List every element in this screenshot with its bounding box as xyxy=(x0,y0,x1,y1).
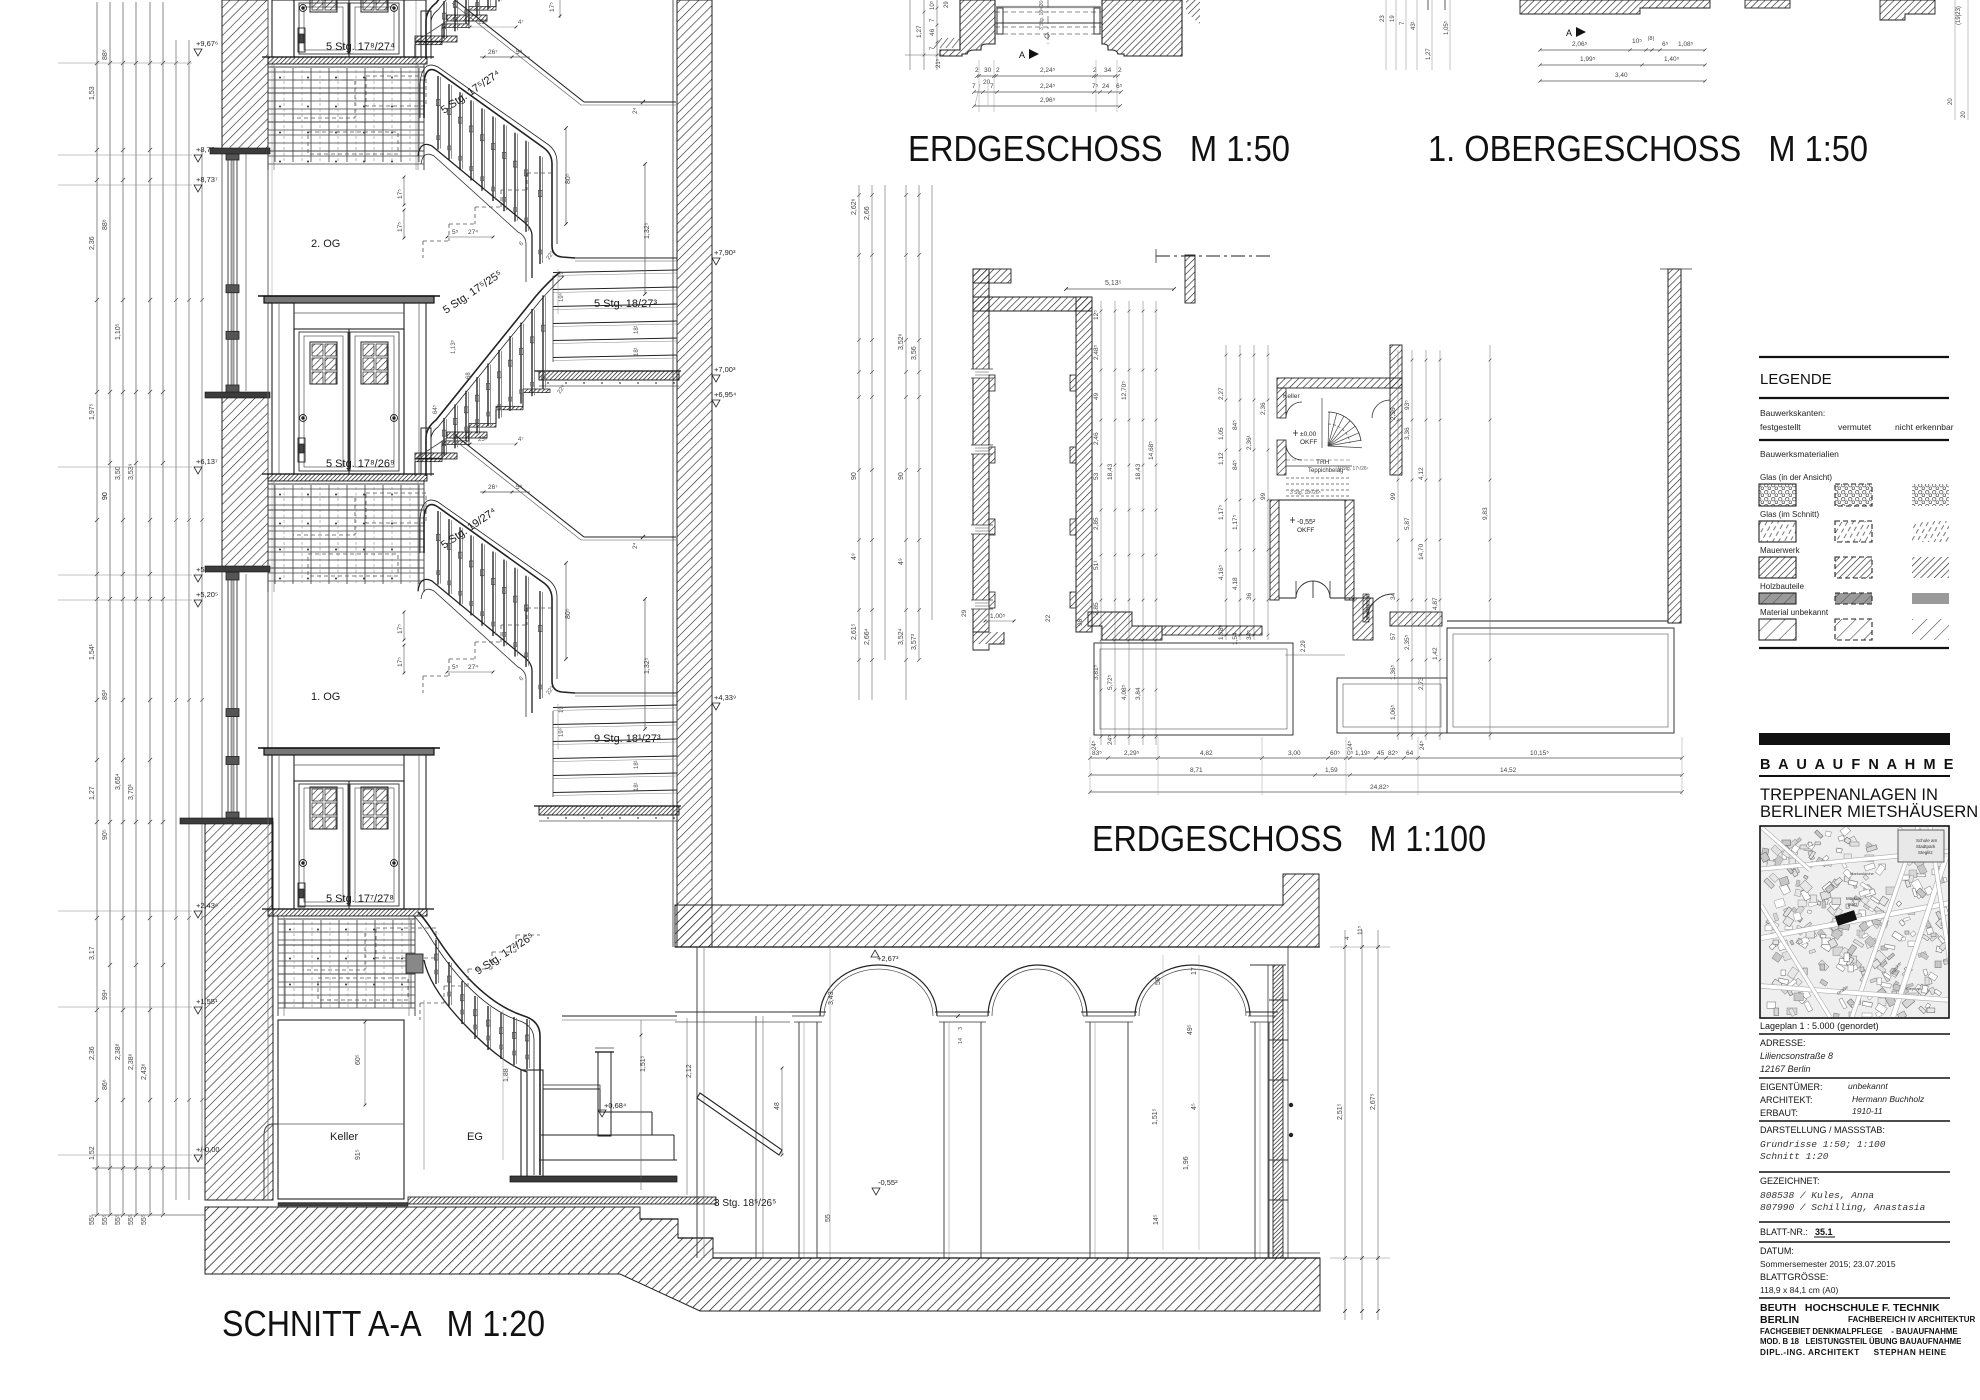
svg-text:4⁷: 4⁷ xyxy=(518,436,524,443)
svg-text:2,29⁵: 2,29⁵ xyxy=(1124,750,1140,757)
svg-text:+4,33⁹: +4,33⁹ xyxy=(714,693,736,702)
svg-text:4,12: 4,12 xyxy=(1418,467,1425,480)
svg-text:18,43: 18,43 xyxy=(1107,463,1114,480)
svg-text:5⁸: 5⁸ xyxy=(516,484,523,491)
svg-text:-0,55²: -0,55² xyxy=(1297,519,1316,526)
svg-text:1,12: 1,12 xyxy=(1218,452,1225,465)
svg-text:Grundrisse 1:50; 1:100: Grundrisse 1:50; 1:100 xyxy=(1760,1139,1886,1150)
svg-text:0⁵: 0⁵ xyxy=(1347,750,1354,757)
svg-text:DIPL.-ING. ARCHITEKT STEPH: DIPL.-ING. ARCHITEKT STEPHAN HEINE xyxy=(1760,1348,1947,1357)
svg-text:2,29: 2,29 xyxy=(1301,640,1307,652)
svg-text:+7,00³: +7,00³ xyxy=(714,365,736,374)
svg-text:BERLINER MIETSHÄUSERN: BERLINER MIETSHÄUSERN xyxy=(1760,803,1978,821)
svg-text:GEZEICHNET:: GEZEICHNET: xyxy=(1760,1176,1820,1186)
svg-text:2: 2 xyxy=(996,67,1000,74)
svg-text:86⁶: 86⁶ xyxy=(102,1079,109,1090)
svg-text:Bauwerksmaterialien: Bauwerksmaterialien xyxy=(1760,449,1839,459)
svg-text:2,38⁶: 2,38⁶ xyxy=(128,1053,135,1070)
svg-text:55⁵: 55⁵ xyxy=(141,1214,148,1225)
svg-text:36: 36 xyxy=(1246,592,1253,600)
svg-text:2,51⁵: 2,51⁵ xyxy=(1337,1103,1344,1120)
svg-text:12,70⁵: 12,70⁵ xyxy=(1121,381,1128,400)
svg-text:6⁵: 6⁵ xyxy=(1116,83,1123,90)
svg-text:90: 90 xyxy=(102,492,109,500)
svg-text:2⁴: 2⁴ xyxy=(632,542,639,549)
svg-text:21⁵: 21⁵ xyxy=(935,58,942,68)
svg-text:24⁵: 24⁵ xyxy=(1347,740,1354,750)
svg-text:1,99⁵: 1,99⁵ xyxy=(1580,56,1596,63)
svg-text:unbekannt: unbekannt xyxy=(1848,1081,1888,1091)
svg-text:9 Stg. 17¹/26⁷: 9 Stg. 17¹/26⁷ xyxy=(1338,466,1369,472)
svg-text:2,38⁸: 2,38⁸ xyxy=(115,1043,122,1060)
svg-text:19⁶: 19⁶ xyxy=(558,292,565,302)
svg-text:10⁵: 10⁵ xyxy=(1632,38,1642,45)
svg-text:ADRESSE:: ADRESSE: xyxy=(1760,1038,1806,1048)
svg-text:Liliencsonstraße 8: Liliencsonstraße 8 xyxy=(1760,1051,1833,1061)
svg-text:26⁷: 26⁷ xyxy=(488,484,498,491)
svg-text:vermutet: vermutet xyxy=(1838,422,1872,432)
svg-text:4,18: 4,18 xyxy=(1232,577,1239,590)
svg-text:Keller: Keller xyxy=(330,1131,358,1143)
svg-text:2,35⁵: 2,35⁵ xyxy=(1404,634,1411,650)
svg-text:Sommersemester 2015; 23.07.201: Sommersemester 2015; 23.07.2015 xyxy=(1760,1259,1896,1269)
svg-text:1,06⁵: 1,06⁵ xyxy=(1390,704,1397,720)
svg-text:Hermann Buchholz: Hermann Buchholz xyxy=(1852,1094,1925,1104)
svg-text:2: 2 xyxy=(1118,67,1122,74)
svg-text:3,52⁶: 3,52⁶ xyxy=(898,333,905,350)
svg-text:18¹: 18¹ xyxy=(634,347,640,356)
svg-text:3 Stg. 18¹/26⁵: 3 Stg. 18¹/26⁵ xyxy=(1290,490,1321,496)
svg-text:10,15⁵: 10,15⁵ xyxy=(1530,750,1549,757)
svg-text:1,53: 1,53 xyxy=(89,86,96,100)
svg-text:53: 53 xyxy=(1093,472,1100,480)
svg-text:1,10⁵: 1,10⁵ xyxy=(115,323,122,340)
svg-text:3,84: 3,84 xyxy=(1135,687,1142,700)
svg-text:1,51⁵: 1,51⁵ xyxy=(640,1055,647,1072)
svg-text:45: 45 xyxy=(1377,750,1385,757)
svg-text:1,17⁵: 1,17⁵ xyxy=(1232,514,1239,530)
svg-text:ARCHITEKT:: ARCHITEKT: xyxy=(1760,1095,1813,1105)
svg-text:34: 34 xyxy=(1104,67,1112,74)
svg-text:7⁵: 7⁵ xyxy=(1092,83,1099,90)
svg-text:2,96⁵: 2,96⁵ xyxy=(1040,97,1056,104)
svg-text:3 Stg. 18⁵/26⁵: 3 Stg. 18⁵/26⁵ xyxy=(714,1198,776,1209)
svg-text:90: 90 xyxy=(898,472,905,480)
svg-text:2: 2 xyxy=(975,67,979,74)
svg-text:99⁴: 99⁴ xyxy=(102,989,109,1000)
svg-text:+2,67³: +2,67³ xyxy=(877,954,899,963)
svg-text:55⁵: 55⁵ xyxy=(115,1214,122,1225)
svg-text:27⁴: 27⁴ xyxy=(468,229,478,236)
svg-text:18,43: 18,43 xyxy=(1135,463,1142,480)
svg-text:20: 20 xyxy=(1961,111,1967,118)
svg-text:4⁷: 4⁷ xyxy=(518,19,524,26)
svg-text:14⁵: 14⁵ xyxy=(1153,1214,1160,1225)
svg-text:3,65⁴: 3,65⁴ xyxy=(115,773,122,790)
svg-text:3,53⁹: 3,53⁹ xyxy=(128,463,135,480)
svg-text:807990 / Schilling, Anastasia: 807990 / Schilling, Anastasia xyxy=(1760,1202,1925,1213)
svg-text:20: 20 xyxy=(1948,98,1954,105)
svg-text:Schnitt 1:20: Schnitt 1:20 xyxy=(1760,1151,1829,1162)
svg-text:4,08⁵: 4,08⁵ xyxy=(1121,684,1128,700)
svg-text:1,05⁵: 1,05⁵ xyxy=(1443,20,1450,35)
svg-text:5⁵: 5⁵ xyxy=(452,229,459,236)
svg-text:99: 99 xyxy=(1260,492,1267,500)
svg-text:84⁵: 84⁵ xyxy=(1232,420,1239,430)
svg-text:3,70¹: 3,70¹ xyxy=(128,783,135,800)
svg-text:55⁵: 55⁵ xyxy=(102,1214,109,1225)
svg-text:14,70: 14,70 xyxy=(1418,543,1425,560)
svg-text:Schule am: Schule am xyxy=(1916,838,1938,843)
svg-text:808538 / Kules, Anna: 808538 / Kules, Anna xyxy=(1760,1190,1874,1201)
svg-text:+5,20⁵: +5,20⁵ xyxy=(196,590,218,599)
svg-text:2,06⁵: 2,06⁵ xyxy=(1572,41,1588,48)
svg-text:5,13⁵: 5,13⁵ xyxy=(1105,280,1122,287)
svg-text:Markus-: Markus- xyxy=(1846,896,1863,901)
svg-text:1,59: 1,59 xyxy=(1325,767,1338,774)
svg-text:2,36: 2,36 xyxy=(1390,407,1397,420)
svg-text:8,71: 8,71 xyxy=(1190,767,1203,774)
svg-text:TRH: TRH xyxy=(1316,459,1330,466)
svg-text:SCHNITT A-A M 1:20: SCHNITT A-A M 1:20 xyxy=(222,1303,545,1344)
svg-text:FACHGEBIET DENKMALPFLEGE -: FACHGEBIET DENKMALPFLEGE - BAUAUFNAHME xyxy=(1760,1327,1958,1336)
svg-text:93⁵: 93⁵ xyxy=(1404,400,1411,410)
svg-text:2,46: 2,46 xyxy=(1093,432,1100,445)
svg-text:1,00⁵: 1,00⁵ xyxy=(990,613,1006,620)
svg-text:2,62⁶: 2,62⁶ xyxy=(851,198,858,215)
svg-text:2,67⁵: 2,67⁵ xyxy=(1370,1093,1377,1110)
svg-text:17⁵: 17⁵ xyxy=(397,189,404,199)
svg-text:83⁵: 83⁵ xyxy=(1092,750,1102,757)
svg-text:3,50: 3,50 xyxy=(115,466,122,480)
svg-text:98: 98 xyxy=(1077,618,1084,626)
svg-text:24⁵: 24⁵ xyxy=(1107,735,1114,745)
svg-text:Bauwerkskanten:: Bauwerkskanten: xyxy=(1760,408,1825,418)
svg-text:3,52⁴: 3,52⁴ xyxy=(898,628,905,645)
svg-text:5 Stg. 18/27³: 5 Stg. 18/27³ xyxy=(594,298,657,310)
svg-text:A: A xyxy=(1566,28,1572,38)
svg-text:+6,13⁷: +6,13⁷ xyxy=(196,457,218,466)
svg-text:30: 30 xyxy=(984,67,992,74)
svg-text:+6,95⁴: +6,95⁴ xyxy=(714,390,736,399)
svg-text:B A U A U F N A H M E: B A U A U F N A H M E xyxy=(1760,757,1956,773)
svg-text:3,36: 3,36 xyxy=(1404,427,1411,440)
svg-text:89³: 89³ xyxy=(102,689,109,700)
svg-text:EIGENTÜMER:: EIGENTÜMER: xyxy=(1760,1082,1823,1092)
svg-text:Steglitz: Steglitz xyxy=(1918,850,1934,855)
svg-text:1. OBERGESCHOSS M 1:50: 1. OBERGESCHOSS M 1:50 xyxy=(1428,128,1868,169)
svg-text:2,36: 2,36 xyxy=(1260,402,1267,415)
svg-text:3,40: 3,40 xyxy=(1615,72,1628,79)
svg-text:22: 22 xyxy=(1045,614,1052,622)
svg-text:7: 7 xyxy=(972,83,976,90)
svg-text:-0,55²: -0,55² xyxy=(878,1178,898,1187)
svg-text:ERDGESCHOSS M 1:50: ERDGESCHOSS M 1:50 xyxy=(908,128,1290,169)
svg-text:19: 19 xyxy=(559,706,565,713)
svg-text:24⁵: 24⁵ xyxy=(1091,740,1098,750)
svg-text:1,27: 1,27 xyxy=(916,25,923,38)
svg-text:±0.00: ±0.00 xyxy=(1300,431,1317,438)
svg-text:3: 3 xyxy=(958,1027,964,1030)
svg-text:7: 7 xyxy=(990,83,994,90)
svg-text:14: 14 xyxy=(958,1038,964,1044)
svg-text:55⁵: 55⁵ xyxy=(89,1214,96,1225)
svg-text:2,48⁵: 2,48⁵ xyxy=(1093,344,1100,360)
svg-text:Holzbauteile: Holzbauteile xyxy=(1760,582,1805,591)
svg-text:11⁵: 11⁵ xyxy=(1357,925,1364,935)
svg-text:5 Stg. 17⁷/27⁸: 5 Stg. 17⁷/27⁸ xyxy=(326,893,394,905)
svg-text:10⁵: 10⁵ xyxy=(929,0,936,10)
svg-text:Lageplan 1 : 5.000 (genordet): Lageplan 1 : 5.000 (genordet) xyxy=(1760,1021,1879,1031)
svg-text:14,52: 14,52 xyxy=(1500,767,1517,774)
svg-text:+8,73⁷: +8,73⁷ xyxy=(196,175,218,184)
svg-text:2⁴: 2⁴ xyxy=(632,107,639,114)
svg-text:2,66⁴: 2,66⁴ xyxy=(864,628,871,645)
svg-text:Glas (in der Ansicht): Glas (in der Ansicht) xyxy=(1760,473,1832,482)
svg-text:58: 58 xyxy=(1155,977,1162,985)
svg-text:18¹: 18¹ xyxy=(634,760,640,769)
svg-text:5⁵: 5⁵ xyxy=(452,664,459,671)
svg-text:OKFF: OKFF xyxy=(1300,439,1317,446)
svg-text:2,61⁵: 2,61⁵ xyxy=(851,623,858,640)
svg-text:12167 Berlin: 12167 Berlin xyxy=(1760,1064,1811,1074)
svg-text:60⁵: 60⁵ xyxy=(1330,750,1340,757)
svg-text:Mauerwerk: Mauerwerk xyxy=(1760,546,1801,555)
svg-text:2,24⁵: 2,24⁵ xyxy=(1040,67,1056,74)
svg-text:4⁹: 4⁹ xyxy=(898,558,905,565)
svg-text:ERBAUT:: ERBAUT: xyxy=(1760,1108,1798,1118)
svg-text:1,54¹: 1,54¹ xyxy=(89,643,96,660)
svg-text:35.1: 35.1 xyxy=(1815,1227,1833,1237)
svg-text:18¹: 18¹ xyxy=(634,325,640,334)
svg-text:2,36: 2,36 xyxy=(89,1046,96,1060)
svg-text:+7,90³: +7,90³ xyxy=(714,248,736,257)
svg-text:49: 49 xyxy=(1093,392,1100,400)
svg-text:2,36¹: 2,36¹ xyxy=(1246,434,1253,450)
svg-text:29: 29 xyxy=(961,609,968,617)
svg-text:Stadtpark: Stadtpark xyxy=(1916,844,1936,849)
svg-text:26⁷: 26⁷ xyxy=(488,49,498,56)
svg-text:Markuskirche: Markuskirche xyxy=(1850,871,1875,876)
svg-text:DARSTELLUNG / MASSSTAB:: DARSTELLUNG / MASSSTAB: xyxy=(1760,1125,1885,1135)
svg-text:2,24⁵: 2,24⁵ xyxy=(1040,83,1056,90)
svg-text:1910-11: 1910-11 xyxy=(1852,1106,1883,1116)
svg-text:1,32⁵: 1,32⁵ xyxy=(644,657,651,674)
svg-text:17⁵: 17⁵ xyxy=(397,624,404,634)
svg-text:Glas (im Schnitt): Glas (im Schnitt) xyxy=(1760,510,1819,519)
svg-text:48: 48 xyxy=(774,1102,781,1110)
svg-text:34: 34 xyxy=(1390,592,1397,600)
svg-text:9,83: 9,83 xyxy=(1482,507,1489,520)
svg-text:14,68⁵: 14,68⁵ xyxy=(1148,441,1155,460)
svg-text:3,17: 3,17 xyxy=(89,946,96,960)
svg-text:51¹: 51¹ xyxy=(1093,560,1100,570)
svg-text:Material unbekannt: Material unbekannt xyxy=(1760,608,1829,617)
svg-text:17⁵: 17⁵ xyxy=(549,2,556,12)
svg-text:4,16⁵: 4,16⁵ xyxy=(1218,564,1225,580)
svg-text:17⁵: 17⁵ xyxy=(397,657,404,667)
svg-text:19: 19 xyxy=(559,271,565,278)
svg-text:EG: EG xyxy=(467,1131,483,1143)
svg-text:24: 24 xyxy=(1102,83,1110,90)
svg-text:4: 4 xyxy=(1344,936,1351,940)
svg-text:49⁵: 49⁵ xyxy=(1187,1024,1194,1035)
svg-text:82⁵: 82⁵ xyxy=(1388,750,1398,757)
svg-text:1,51⁵: 1,51⁵ xyxy=(1152,1108,1159,1125)
svg-text:5 Stg. 17⁸/26⁹: 5 Stg. 17⁸/26⁹ xyxy=(326,458,395,470)
svg-text:1,05: 1,05 xyxy=(1218,427,1225,440)
svg-text:2,36: 2,36 xyxy=(89,236,96,250)
svg-text:46: 46 xyxy=(929,28,936,36)
svg-text:3,43: 3,43 xyxy=(828,991,835,1005)
svg-text:2,43⁶: 2,43⁶ xyxy=(141,1063,148,1080)
svg-text:17⁵: 17⁵ xyxy=(397,222,404,232)
svg-text:5,72⁵: 5,72⁵ xyxy=(1107,674,1114,690)
svg-text:1,97⁵: 1,97⁵ xyxy=(89,403,96,420)
svg-text:BEUTH HOCHSCHULE F. TECHNIK: BEUTH HOCHSCHULE F. TECHNIK xyxy=(1760,1302,1940,1314)
svg-text:19: 19 xyxy=(1390,15,1396,22)
svg-text:90: 90 xyxy=(851,472,858,480)
svg-text:TREPPENANLAGEN IN: TREPPENANLAGEN IN xyxy=(1760,786,1938,804)
svg-text:2,85: 2,85 xyxy=(1093,517,1100,530)
svg-text:68: 68 xyxy=(466,372,472,379)
svg-text:19⁶: 19⁶ xyxy=(558,727,565,737)
svg-text:88⁸: 88⁸ xyxy=(102,219,109,230)
svg-text:1,96: 1,96 xyxy=(1183,1156,1190,1170)
svg-text:55⁵: 55⁵ xyxy=(128,1214,135,1225)
svg-text:MOD. B 18 LEISTUNGSTEIL ÜBUN: MOD. B 18 LEISTUNGSTEIL ÜBUNG BAUAUFNAHM… xyxy=(1760,1337,1961,1346)
svg-text:27⁴: 27⁴ xyxy=(468,664,478,671)
svg-text:+0,68⁴: +0,68⁴ xyxy=(604,1101,626,1110)
svg-text:4⁵: 4⁵ xyxy=(1191,1103,1198,1110)
svg-text:2. OG: 2. OG xyxy=(311,238,340,250)
svg-text:BERLIN: BERLIN xyxy=(1760,1314,1799,1326)
svg-text:64: 64 xyxy=(1406,750,1414,757)
svg-text:9 Stg. 18¹/27³: 9 Stg. 18¹/27³ xyxy=(594,733,661,745)
svg-text:1,27: 1,27 xyxy=(89,786,96,800)
svg-text:24⁵: 24⁵ xyxy=(1419,740,1426,750)
svg-text:24,82⁵: 24,82⁵ xyxy=(1370,784,1389,791)
svg-text:1,08⁵: 1,08⁵ xyxy=(1678,41,1694,48)
svg-text:|8|: |8| xyxy=(1648,36,1654,42)
svg-text:nicht erkennbar: nicht erkennbar xyxy=(1895,422,1954,432)
svg-text:2,27: 2,27 xyxy=(1218,387,1225,400)
svg-text:2,12: 2,12 xyxy=(686,1064,693,1078)
svg-text:118,9 x 84,1 cm (A0): 118,9 x 84,1 cm (A0) xyxy=(1760,1285,1838,1295)
svg-text:Stephan-: Stephan- xyxy=(1906,986,1923,991)
svg-text:88⁸: 88⁸ xyxy=(102,49,109,60)
svg-text:4,82: 4,82 xyxy=(1200,750,1213,757)
svg-text:2: 2 xyxy=(1093,67,1097,74)
svg-text:3,00: 3,00 xyxy=(1288,750,1301,757)
svg-text:A: A xyxy=(1019,50,1025,60)
svg-text:55: 55 xyxy=(825,1214,832,1222)
svg-text:1,32⁵: 1,32⁵ xyxy=(644,222,651,239)
svg-text:1,19⁵: 1,19⁵ xyxy=(1355,750,1371,757)
svg-text:43¹: 43¹ xyxy=(1411,21,1417,30)
svg-text:18¹: 18¹ xyxy=(634,782,640,791)
svg-text:5⁸: 5⁸ xyxy=(516,49,523,56)
svg-text:1. OG: 1. OG xyxy=(311,691,340,703)
svg-text:2,66: 2,66 xyxy=(864,206,871,220)
svg-text:OKFF: OKFF xyxy=(1297,527,1314,534)
svg-text:84⁵: 84⁵ xyxy=(1232,460,1239,470)
svg-text:festgestellt: festgestellt xyxy=(1760,422,1801,432)
svg-text:ERDGESCHOSS M 1:100: ERDGESCHOSS M 1:100 xyxy=(1092,818,1486,859)
svg-text:Keller: Keller xyxy=(1283,393,1300,400)
svg-text:5 Stg. 17⁸/27⁴: 5 Stg. 17⁸/27⁴ xyxy=(326,41,395,53)
svg-text:DATUM:: DATUM: xyxy=(1760,1246,1794,1256)
svg-text:6⁵: 6⁵ xyxy=(1662,41,1669,48)
svg-text:LEGENDE: LEGENDE xyxy=(1760,371,1832,388)
svg-text:1,27: 1,27 xyxy=(1426,48,1432,60)
svg-text:99: 99 xyxy=(1390,492,1397,500)
svg-text:4,87: 4,87 xyxy=(1432,597,1439,610)
svg-text:BLATT-NR.:: BLATT-NR.: xyxy=(1760,1227,1808,1237)
svg-text:1,88: 1,88 xyxy=(503,1068,510,1082)
svg-text:29: 29 xyxy=(944,1,950,8)
svg-text:80⁵: 80⁵ xyxy=(565,173,572,184)
svg-text:1,17⁵: 1,17⁵ xyxy=(1218,504,1225,520)
svg-text:platz: platz xyxy=(1848,902,1858,907)
svg-text:1,13⁵: 1,13⁵ xyxy=(450,339,457,354)
svg-text:FACHBEREICH IV ARCHITEKTUR: FACHBEREICH IV ARCHITEKTUR xyxy=(1848,1315,1975,1324)
svg-text:3,56: 3,56 xyxy=(911,346,918,360)
svg-text:1,42: 1,42 xyxy=(1432,647,1439,660)
svg-text:91⁵: 91⁵ xyxy=(355,1149,362,1160)
svg-text:1,40⁵: 1,40⁵ xyxy=(1664,56,1680,63)
svg-text:1,52: 1,52 xyxy=(89,1146,96,1160)
svg-text:+9,67⁶: +9,67⁶ xyxy=(196,39,218,48)
svg-text:60⁵: 60⁵ xyxy=(355,1054,362,1065)
svg-text:80⁵: 80⁵ xyxy=(565,608,572,619)
svg-text:BLATTGRÖSSE:: BLATTGRÖSSE: xyxy=(1760,1272,1828,1282)
svg-text:90⁵: 90⁵ xyxy=(102,829,109,840)
svg-text:5,87: 5,87 xyxy=(1404,517,1411,530)
svg-text:17: 17 xyxy=(1191,967,1198,975)
svg-text:4⁹: 4⁹ xyxy=(851,553,858,560)
svg-text:3,57³: 3,57³ xyxy=(911,633,918,650)
svg-text:3 Stg. 18⁶/26⁹: 3 Stg. 18⁶/26⁹ xyxy=(1039,0,1045,30)
svg-text:(19|23): (19|23) xyxy=(1956,6,1962,25)
svg-text:64⁵: 64⁵ xyxy=(432,404,439,414)
svg-text:57: 57 xyxy=(1390,632,1397,640)
svg-text:23: 23 xyxy=(1380,15,1386,22)
svg-text:12⁵: 12⁵ xyxy=(1093,310,1100,320)
svg-text:2,73: 2,73 xyxy=(1418,677,1425,690)
svg-text:1,36⁵: 1,36⁵ xyxy=(1390,664,1397,680)
